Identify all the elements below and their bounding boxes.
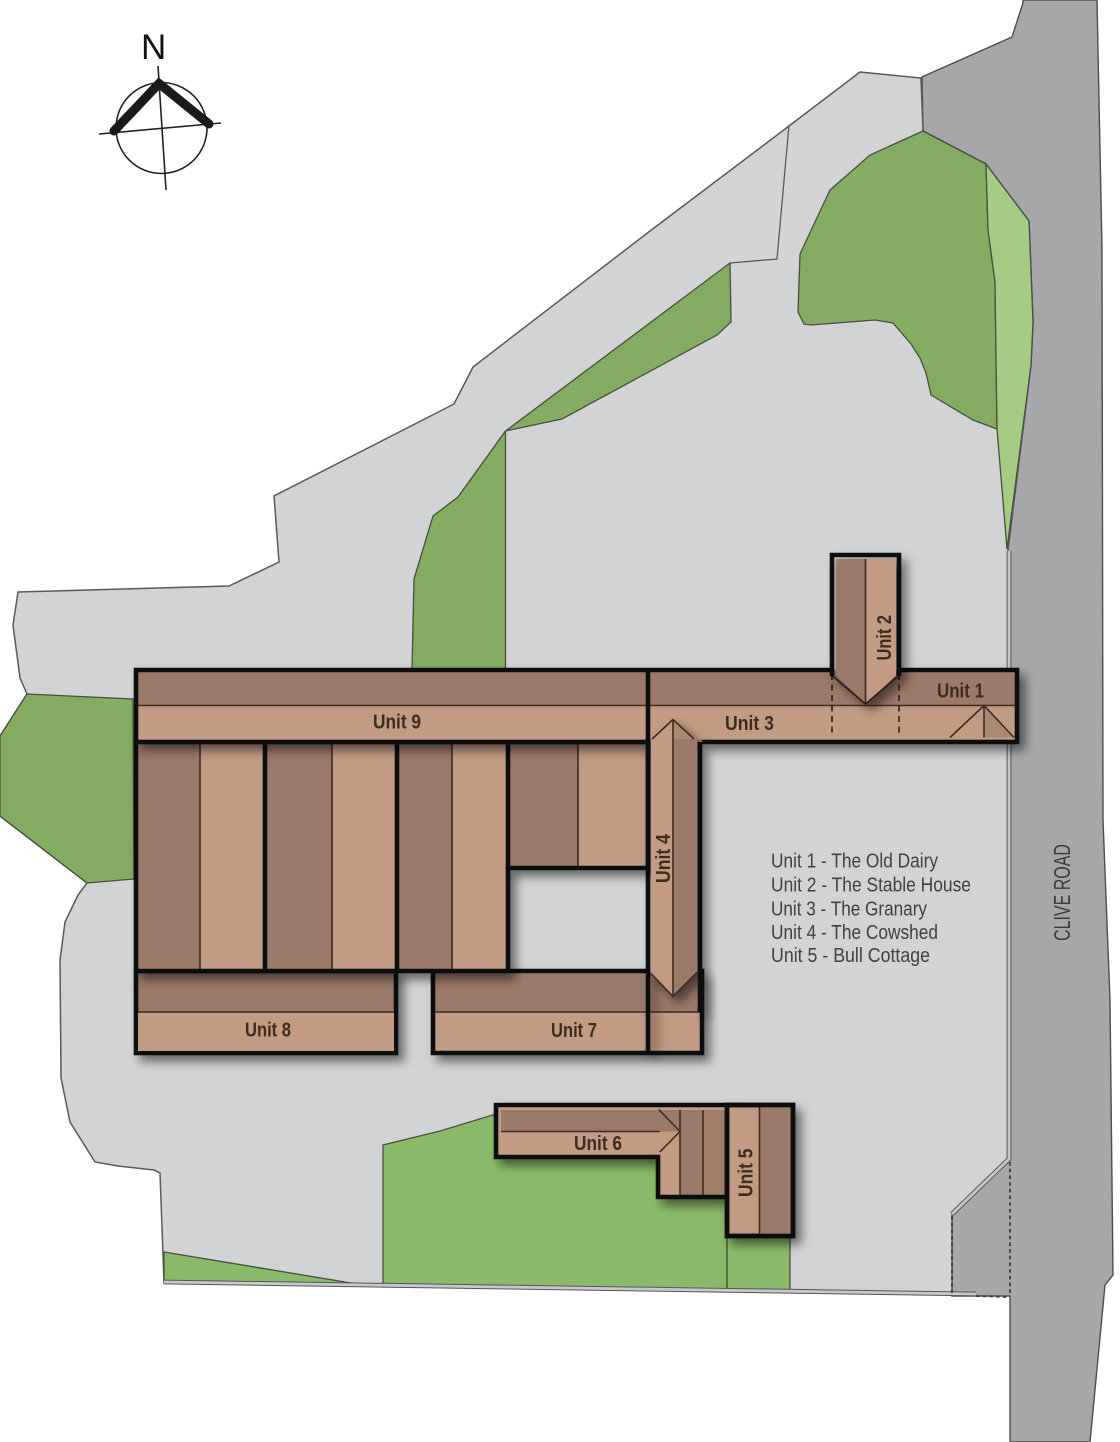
svg-text:Unit 3 - The Granary: Unit 3 - The Granary: [771, 898, 927, 920]
svg-text:Unit 2 - The Stable House: Unit 2 - The Stable House: [771, 874, 971, 896]
svg-text:Unit 3: Unit 3: [725, 713, 774, 735]
svg-text:Unit 2: Unit 2: [874, 615, 896, 661]
svg-text:N: N: [141, 28, 166, 67]
svg-text:CLIVE ROAD: CLIVE ROAD: [1049, 844, 1075, 941]
svg-text:Unit 1 - The Old Dairy: Unit 1 - The Old Dairy: [771, 851, 938, 873]
svg-text:Unit 7: Unit 7: [551, 1020, 597, 1042]
svg-text:Unit 5: Unit 5: [736, 1149, 758, 1198]
svg-text:Unit 9: Unit 9: [373, 712, 421, 734]
svg-text:Unit 4: Unit 4: [653, 833, 675, 883]
svg-text:Unit 6: Unit 6: [574, 1133, 622, 1155]
svg-text:Unit 1: Unit 1: [937, 681, 984, 703]
svg-text:Unit 5 - Bull Cottage: Unit 5 - Bull Cottage: [771, 945, 930, 967]
svg-text:Unit 8: Unit 8: [245, 1020, 291, 1042]
svg-text:Unit 4 - The Cowshed: Unit 4 - The Cowshed: [771, 922, 938, 944]
